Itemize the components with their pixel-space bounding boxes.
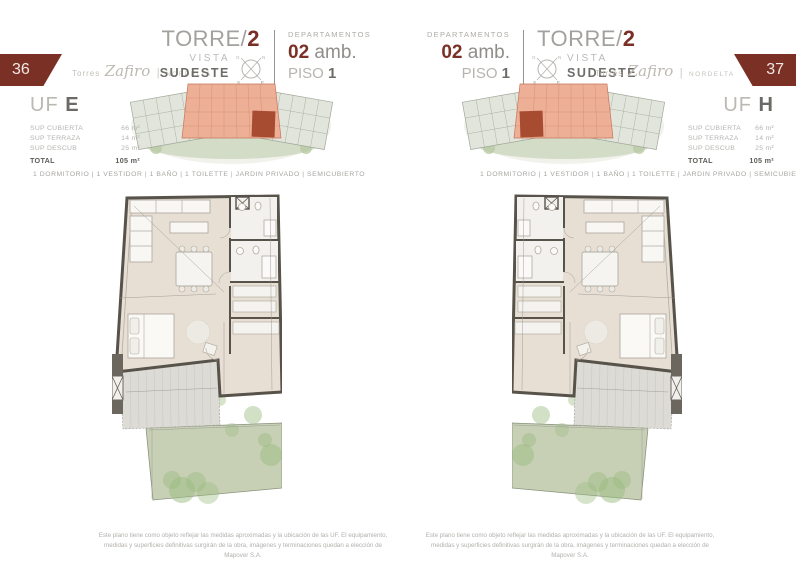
unit-letter: E [65, 94, 79, 116]
torre-line: TORRE/2 [537, 28, 649, 50]
surface-table: SUP CUBIERTA66 m² SUP TERRAZA14 m² SUP D… [30, 125, 140, 165]
disclaimer-right: Este plano tiene como objeto reflejar la… [422, 531, 718, 561]
site-map-right [460, 74, 667, 170]
amenities-line-right: 1 DORMITORIO | 1 VESTIDOR | 1 BAÑO | 1 T… [480, 171, 796, 178]
brand-separator: | [680, 67, 683, 79]
dept-label: DEPARTAMENTOS [288, 31, 371, 39]
site-map-left [128, 74, 335, 170]
brochure-spread: 36 Torres Zafiro | NORDELTA TORRE/2 VIST… [0, 0, 796, 563]
torre-line: TORRE/2 [148, 28, 260, 50]
surface-row: SUP TERRAZA14 m² [688, 135, 774, 142]
surface-row: SUP TERRAZA14 m² [30, 135, 140, 142]
disclaimer-left: Este plano tiene como objeto reflejar la… [95, 531, 391, 561]
unit-name: UF E [30, 94, 140, 117]
unit-name: UF H [688, 94, 774, 117]
surface-row: SUP DESCUB25 m² [688, 145, 774, 152]
page-number: 36 [12, 61, 30, 78]
surface-table: SUP CUBIERTA66 m² SUP TERRAZA14 m² SUP D… [688, 125, 774, 165]
torre-number: 2 [623, 26, 636, 51]
surface-total-row: TOTAL105 m² [30, 156, 140, 165]
unit-block-left: UF E SUP CUBIERTA66 m² SUP TERRAZA14 m² … [30, 94, 140, 168]
brand-nordelta: NORDELTA [689, 71, 735, 78]
surface-row: SUP CUBIERTA66 m² [688, 125, 774, 132]
brand-torres: Torres [72, 69, 100, 78]
dept-rooms: 02 amb. [424, 43, 510, 62]
amenities-line-left: 1 DORMITORIO | 1 VESTIDOR | 1 BAÑO | 1 T… [33, 171, 365, 178]
floor-plan-right [512, 194, 682, 526]
svg-text:N: N [262, 55, 265, 60]
surface-row: SUP DESCUB25 m² [30, 145, 140, 152]
svg-text:O: O [532, 55, 536, 60]
svg-text:O: O [236, 55, 240, 60]
surface-total-row: TOTAL105 m² [688, 156, 774, 165]
dept-rooms: 02 amb. [288, 43, 371, 62]
unit-block-right: UF H SUP CUBIERTA66 m² SUP TERRAZA14 m² … [688, 94, 796, 168]
page-number-ribbon-left: 36 [0, 54, 62, 86]
page-number-ribbon-right: 37 [734, 54, 796, 86]
unit-letter: H [759, 94, 774, 116]
page-number: 37 [766, 61, 784, 78]
floor-plan-left [112, 194, 282, 526]
surface-row: SUP CUBIERTA66 m² [30, 125, 140, 132]
dept-label: DEPARTAMENTOS [424, 31, 510, 39]
torre-number: 2 [247, 26, 260, 51]
